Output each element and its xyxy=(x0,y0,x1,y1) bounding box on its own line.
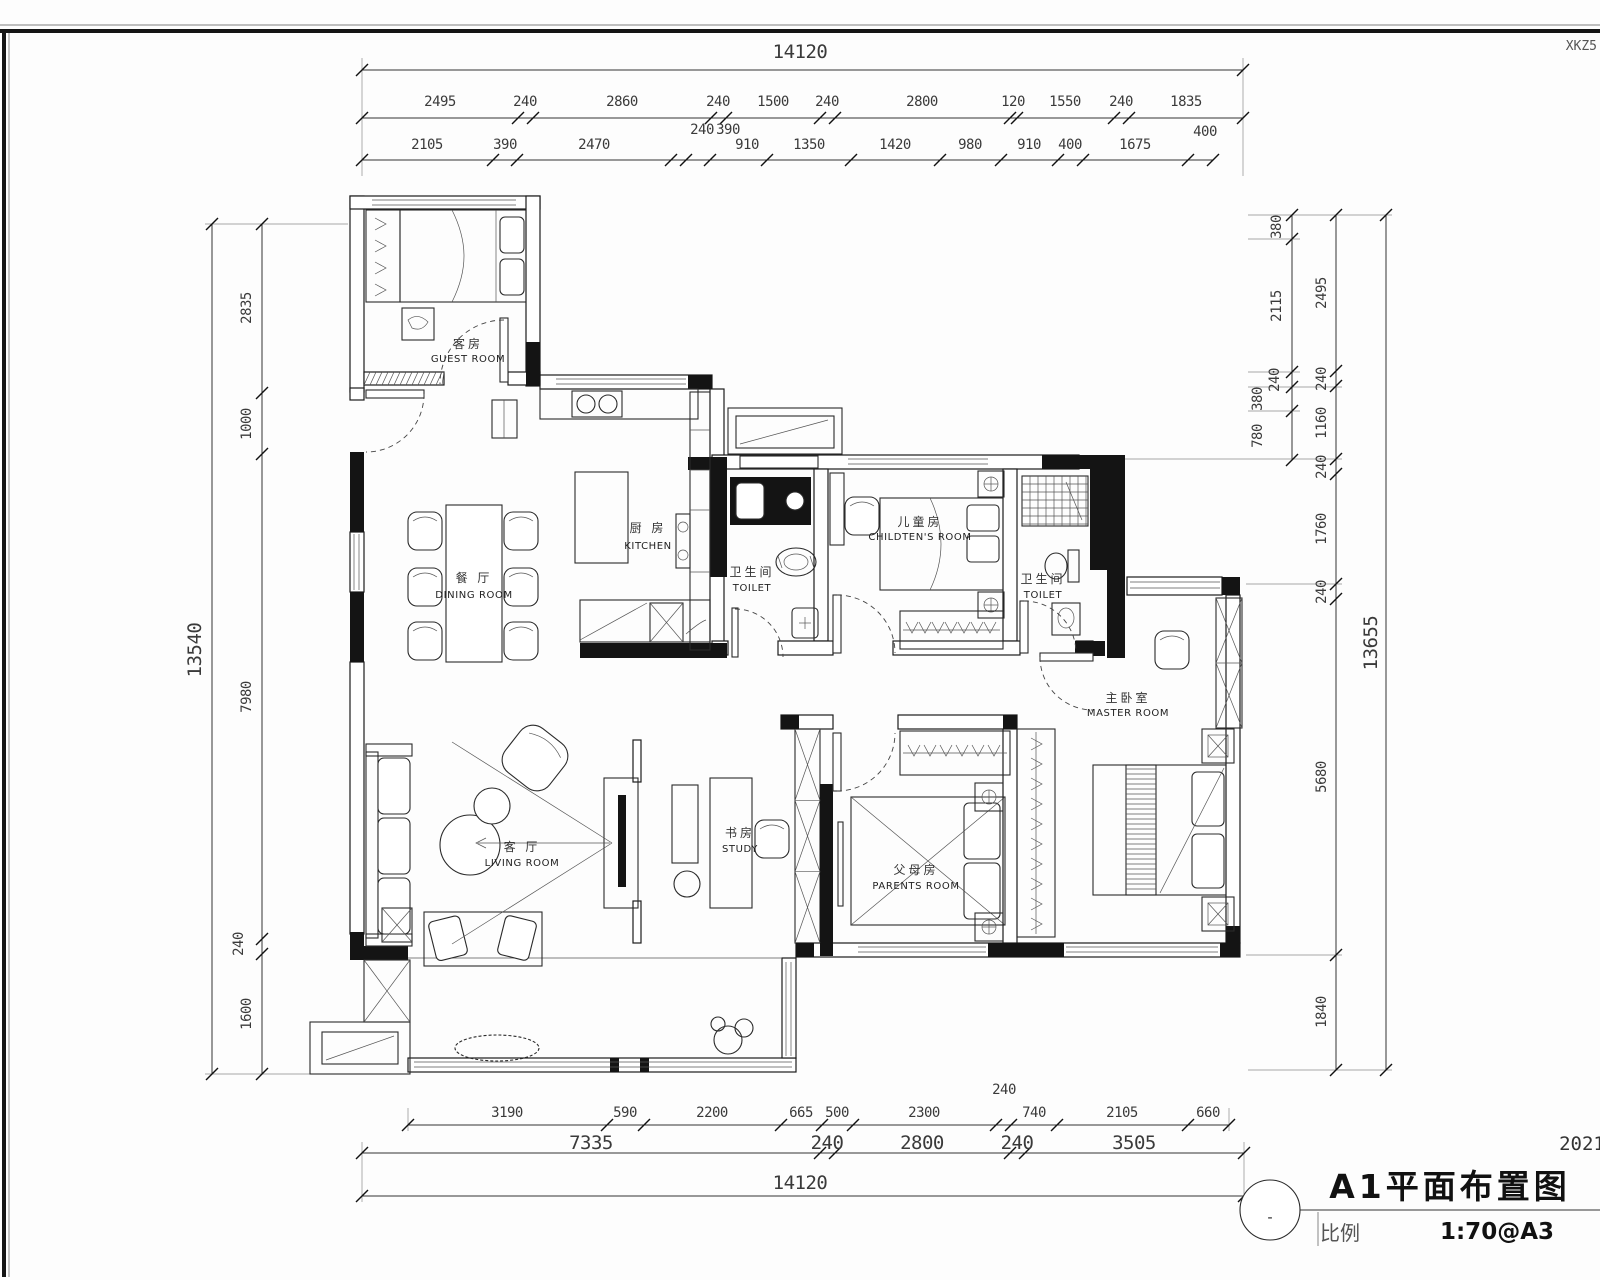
scale-label: 比例 xyxy=(1320,1221,1360,1245)
dim-label: 2800 xyxy=(900,1132,944,1154)
dim-label: 910 xyxy=(1017,137,1041,153)
dim-label: 660 xyxy=(1196,1105,1220,1121)
dim-label: 1600 xyxy=(239,998,255,1030)
room-label-study-zh: 书房 xyxy=(725,825,755,840)
kitchen-sink xyxy=(572,391,622,417)
dim-label: 2105 xyxy=(1106,1105,1138,1121)
room-label-toilet2-zh: 卫生间 xyxy=(1020,572,1065,586)
dim-label: 240 xyxy=(231,932,247,956)
dim-label: 910 xyxy=(735,137,759,153)
parents-tv xyxy=(838,822,843,906)
dim-label: 240 xyxy=(1109,94,1133,110)
toilet1-door-leaf xyxy=(732,608,738,657)
drawing-sheet: XKZ5 14120 2495 240 2860 240 1500 240 28 xyxy=(0,0,1600,1280)
dim-label: 240 xyxy=(1267,368,1283,392)
dim-label: 1760 xyxy=(1314,513,1330,545)
room-label-master-zh: 主卧室 xyxy=(1105,690,1150,705)
dim-label: 1675 xyxy=(1119,137,1151,153)
dim-label: 665 xyxy=(789,1105,813,1121)
tv xyxy=(618,795,626,887)
dim-label: 1160 xyxy=(1314,407,1330,439)
dim-label: 240 xyxy=(1314,455,1330,479)
dim-label: 14120 xyxy=(773,1172,828,1194)
sofa-back xyxy=(366,752,378,938)
dim-label: 1500 xyxy=(757,94,789,110)
toilet2-wc-tank xyxy=(1068,550,1079,582)
dim-label: 13655 xyxy=(1360,616,1382,671)
dim-label: 240 xyxy=(1001,1132,1034,1154)
dim-label: 1350 xyxy=(793,137,825,153)
dim-label: 240 xyxy=(513,94,537,110)
entry-door-leaf xyxy=(366,390,424,398)
room-label-dining-zh: 餐 厅 xyxy=(456,570,493,585)
room-label-children-zh: 儿童房 xyxy=(897,514,942,529)
dim-label: 2115 xyxy=(1269,290,1285,322)
dim-label: 400 xyxy=(1058,137,1082,153)
dim-label: 2300 xyxy=(908,1105,940,1121)
room-label-toilet1-en: TOILET xyxy=(732,583,772,594)
dim-label: 14120 xyxy=(773,41,828,63)
dim-label: 390 xyxy=(716,122,740,138)
dim-label: 240 xyxy=(690,122,714,138)
room-label-living-en: LIVING ROOM xyxy=(485,858,560,869)
dim-label: 390 xyxy=(493,137,517,153)
room-label-children-en: CHILDTEN'S ROOM xyxy=(868,532,971,543)
room-label-master-en: MASTER ROOM xyxy=(1087,708,1169,719)
dim-label: 5680 xyxy=(1314,761,1330,793)
furniture-layer xyxy=(366,210,1234,1061)
title-block: 2021 - A1平面布置图 比例 1:70@A3 xyxy=(1240,1133,1600,1246)
room-label-study-en: STUDY xyxy=(722,844,758,855)
dim-label: 2200 xyxy=(696,1105,728,1121)
dim-label: 2105 xyxy=(411,137,443,153)
corner-note: XKZ5 xyxy=(1566,39,1597,54)
dim-label: 240 xyxy=(706,94,730,110)
lounge-chair xyxy=(496,719,575,798)
dim-label: 400 xyxy=(1193,124,1217,140)
dim-label: 3505 xyxy=(1112,1132,1156,1154)
dim-label: 1840 xyxy=(1314,996,1330,1028)
dim-label: 380 xyxy=(1269,215,1285,239)
guest-door-leaf xyxy=(500,318,508,382)
dim-label: 240 xyxy=(992,1082,1016,1098)
parents-door-leaf xyxy=(833,733,841,791)
kitchen-counter xyxy=(540,389,698,419)
room-label-parents-zh: 父母房 xyxy=(893,862,938,877)
dim-label: 7335 xyxy=(569,1132,613,1154)
dim-label: 2835 xyxy=(239,292,255,324)
study-desk xyxy=(710,778,752,908)
room-label-toilet1-zh: 卫生间 xyxy=(729,565,774,579)
children-door-leaf xyxy=(833,595,841,653)
toilet2-door-leaf xyxy=(1020,601,1028,653)
room-label-kitchen-zh: 厨 房 xyxy=(630,520,667,535)
room-label-parents-en: PARENTS ROOM xyxy=(872,881,959,892)
children-desk xyxy=(830,473,844,545)
dim-label: 740 xyxy=(1022,1105,1046,1121)
dim-label: 240 xyxy=(811,1132,844,1154)
dim-label: 1000 xyxy=(239,408,255,440)
dim-label: 2800 xyxy=(906,94,938,110)
dim-label: 2860 xyxy=(606,94,638,110)
dim-label: 1835 xyxy=(1170,94,1202,110)
dim-label: 2495 xyxy=(1314,277,1330,309)
room-label-guest-en: GUEST ROOM xyxy=(431,354,505,365)
room-label-kitchen-en: KITCHEN xyxy=(624,541,672,552)
dim-label: 380 xyxy=(1250,387,1266,411)
dim-label: 240 xyxy=(1314,580,1330,604)
study-cabinet xyxy=(672,785,698,863)
dim-label: 240 xyxy=(1314,367,1330,391)
dim-label: 780 xyxy=(1250,424,1266,448)
dim-label: 1550 xyxy=(1049,94,1081,110)
room-label-guest-zh: 客房 xyxy=(453,336,483,351)
dim-label: 7980 xyxy=(239,681,255,713)
cactus xyxy=(714,1026,742,1054)
year-note: 2021 xyxy=(1559,1133,1600,1155)
dim-label: 13540 xyxy=(184,623,206,678)
study-stool xyxy=(674,871,700,897)
dim-label: 590 xyxy=(613,1105,637,1121)
room-label-living-zh: 客 厅 xyxy=(504,839,541,854)
kitchen-island xyxy=(575,472,628,563)
scale-value: 1:70@A3 xyxy=(1440,1219,1554,1245)
drawing-title: A1平面布置图 xyxy=(1329,1167,1571,1206)
plant xyxy=(455,1035,539,1061)
dim-label: 2495 xyxy=(424,94,456,110)
guest-desk xyxy=(402,308,434,340)
hall-cabinet xyxy=(492,400,517,438)
dim-label: 500 xyxy=(825,1105,849,1121)
master-door-leaf xyxy=(1040,653,1093,661)
dim-label: 3190 xyxy=(491,1105,523,1121)
room-label-toilet2-en: TOILET xyxy=(1023,590,1063,601)
dim-label: 240 xyxy=(815,94,839,110)
dim-label: 1420 xyxy=(879,137,911,153)
dim-label: 120 xyxy=(1001,94,1025,110)
room-label-dining-en: DINING ROOM xyxy=(435,590,512,601)
dim-label: 2470 xyxy=(578,137,610,153)
toilet1-tub xyxy=(776,548,816,576)
dim-label: 980 xyxy=(958,137,982,153)
bubble-mark: - xyxy=(1265,1208,1274,1226)
floor-plan-svg: XKZ5 14120 2495 240 2860 240 1500 240 28 xyxy=(0,0,1600,1280)
